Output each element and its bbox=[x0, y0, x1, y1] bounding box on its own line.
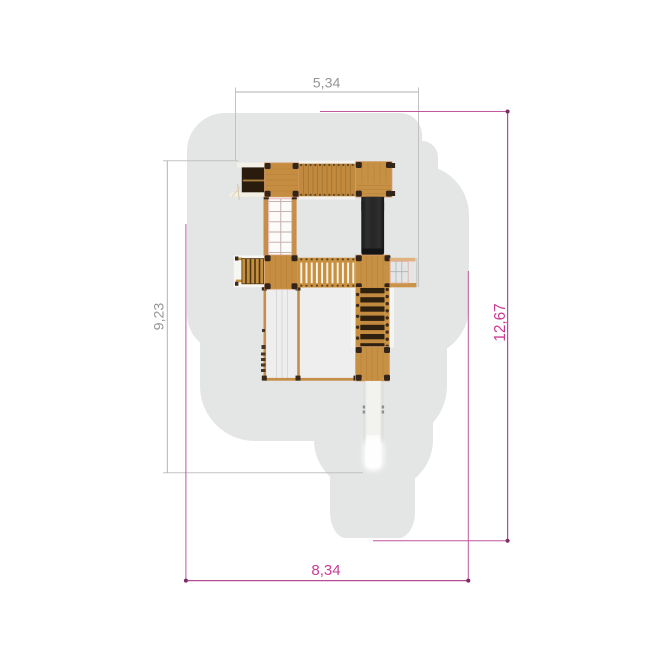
svg-text:5,34: 5,34 bbox=[313, 76, 341, 92]
svg-text:9,23: 9,23 bbox=[151, 303, 167, 331]
svg-text:8,34: 8,34 bbox=[311, 562, 340, 579]
svg-text:12,67: 12,67 bbox=[492, 303, 509, 341]
